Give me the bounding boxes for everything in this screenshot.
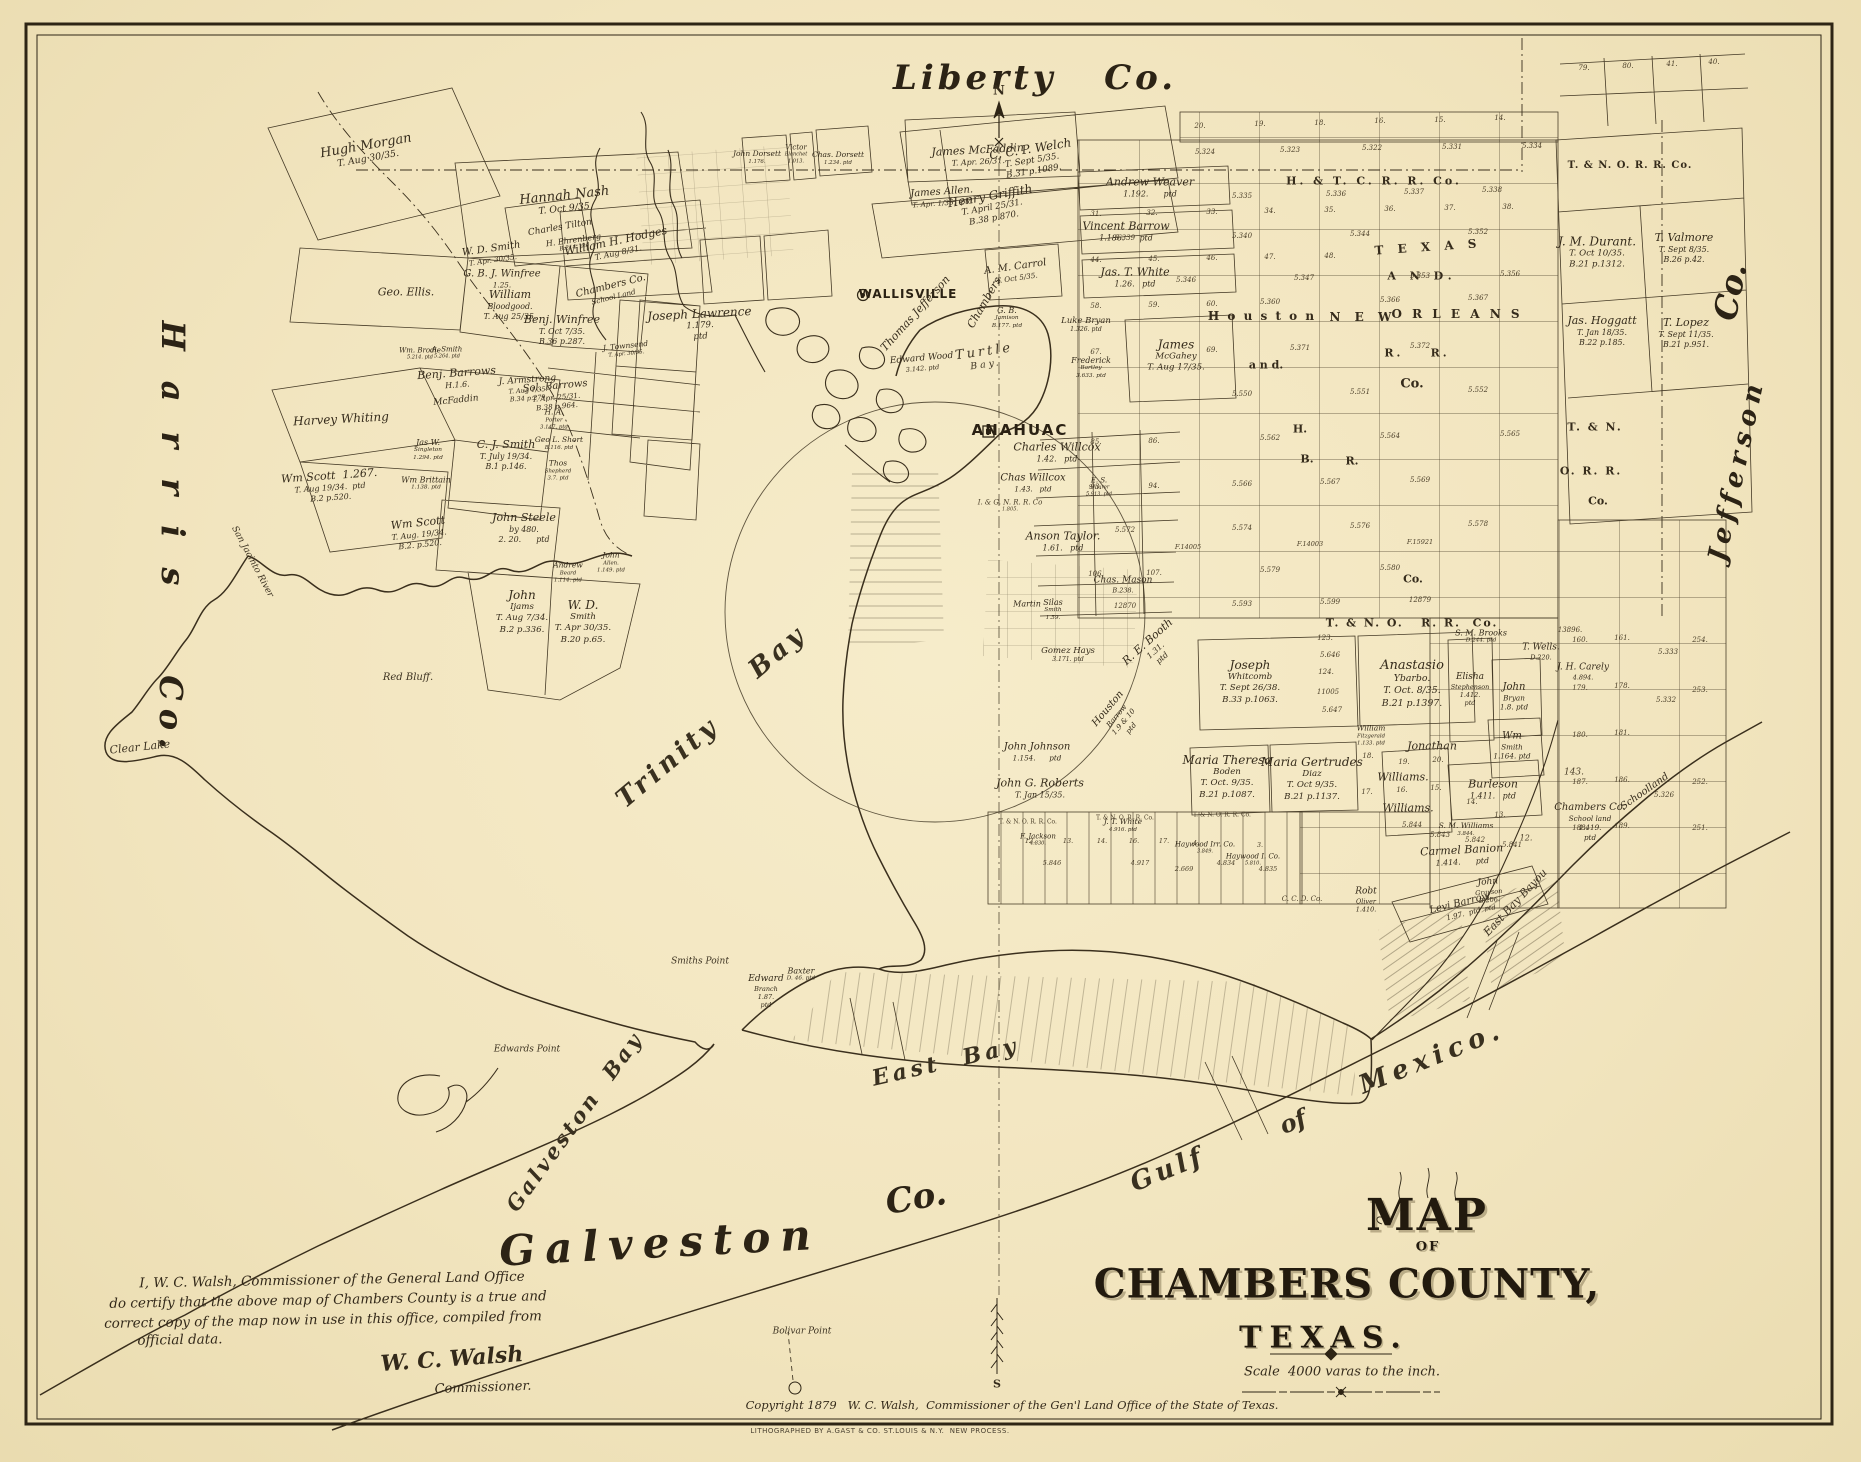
gulf-beach [332, 832, 1790, 1430]
turtle-bay-shore [896, 306, 1051, 432]
delta-marsh [735, 308, 926, 483]
compass-north-arrow [994, 102, 1004, 146]
compass-south-plume [991, 1298, 1003, 1374]
title-flourishes [1242, 1168, 1457, 1397]
harris-galveston-shore [40, 553, 714, 1395]
map-linework [0, 0, 1861, 1462]
bay-islet [398, 1068, 498, 1132]
anahuac-symbol [983, 426, 994, 437]
bolivar-lighthouse-symbol [788, 1332, 801, 1394]
harris-county-line [318, 92, 632, 556]
wallisville-symbol [858, 290, 869, 301]
map-sheet: MAP OF CHAMBERS COUNTY, TEXAS. Scale 400… [0, 0, 1861, 1462]
old-river [590, 148, 606, 340]
texas-ornament-diamond [1325, 1348, 1337, 1360]
